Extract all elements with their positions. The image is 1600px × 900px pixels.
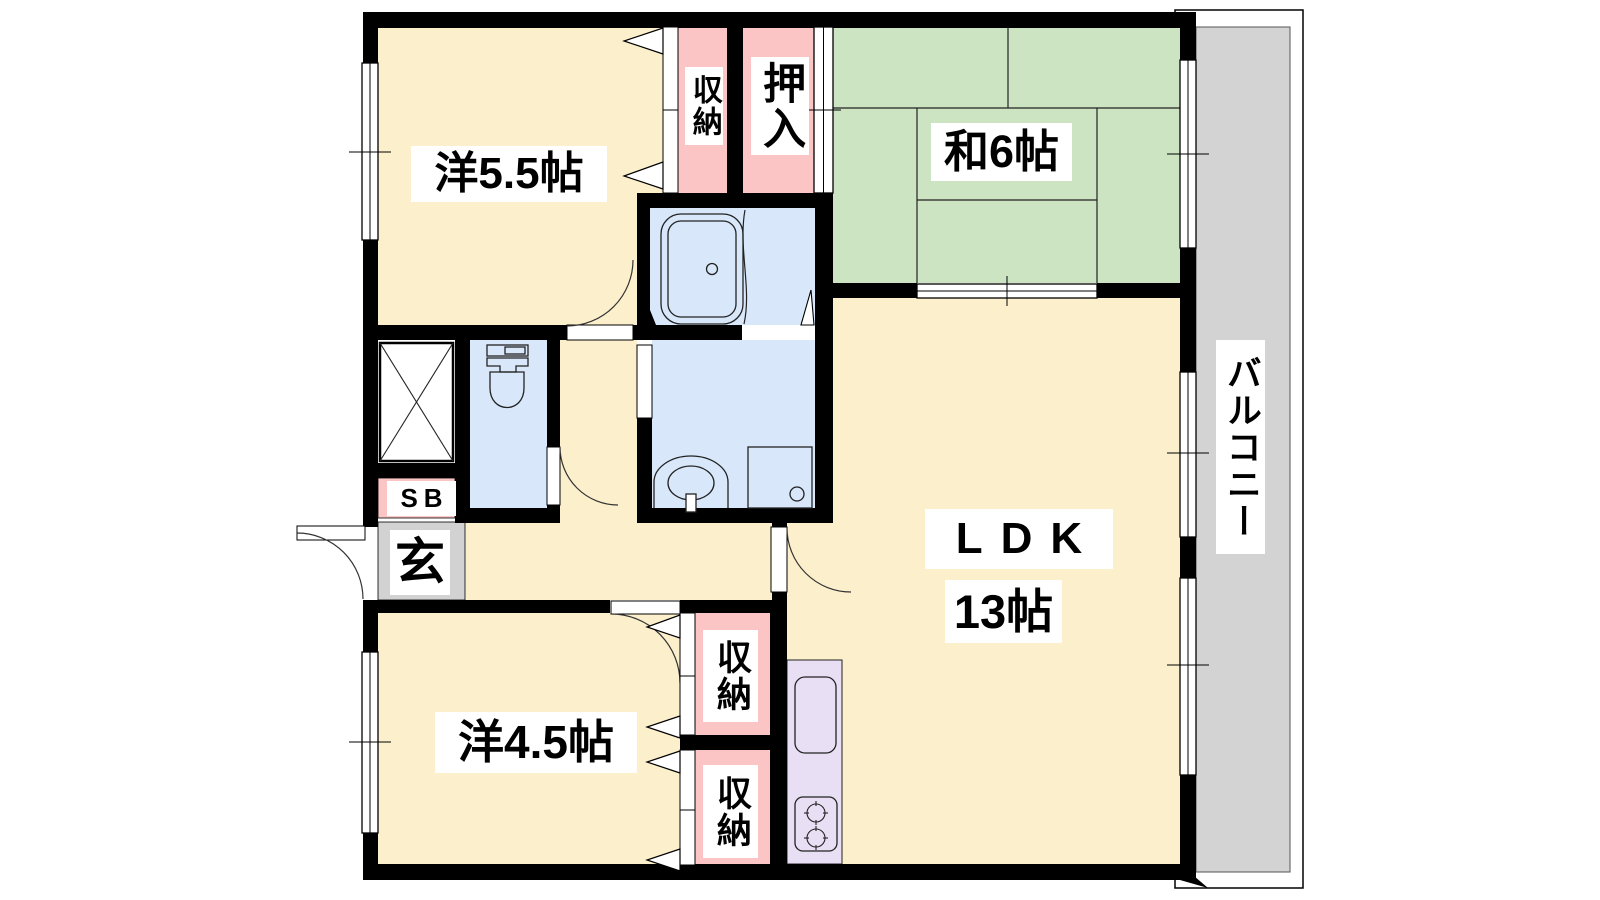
label-western-4-5: 洋4.5帖 (435, 712, 637, 773)
label-oshiire: 押入 (751, 57, 809, 155)
label-closet-top: 収納 (685, 67, 723, 145)
pipe-space-icon (380, 343, 453, 461)
floor-plan: 洋5.5帖 収納 押入 和6帖 バルコニー LDK 13帖 洋4.5帖 収納 収… (0, 0, 1600, 900)
label-closet-lower-top: 収納 (703, 630, 758, 722)
corridor-north (560, 340, 637, 523)
door-swing-entrance (297, 533, 363, 599)
door-opening-bath (742, 326, 815, 339)
door-leaf-western-4-5 (611, 601, 680, 614)
room-washroom (652, 340, 815, 508)
label-japanese-6: 和6帖 (931, 123, 1072, 181)
door-leaf-toilet (547, 447, 560, 505)
door-leaf-ldk (771, 527, 787, 592)
label-shoe-box: SB (387, 481, 456, 516)
label-western-5-5: 洋5.5帖 (411, 146, 607, 202)
label-ldk-size: 13帖 (945, 580, 1062, 643)
room-toilet (470, 340, 547, 508)
corridor-south (465, 523, 772, 600)
door-leaf-western-5-5 (567, 325, 633, 340)
label-closet-lower-bottom: 収納 (703, 765, 758, 858)
label-ldk: LDK (925, 509, 1113, 569)
label-entrance: 玄 (390, 530, 450, 595)
door-leaf-washroom (637, 345, 652, 418)
label-balcony: バルコニー (1216, 340, 1265, 554)
door-leaf-entrance (297, 526, 365, 540)
